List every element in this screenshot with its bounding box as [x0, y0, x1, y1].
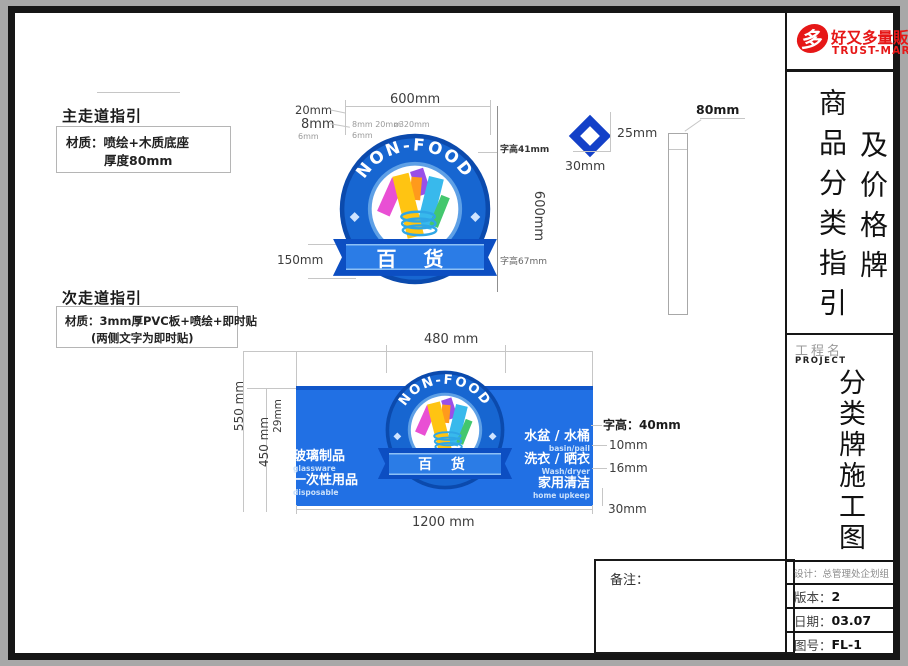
dim-sign2-29: 29mm [273, 393, 285, 439]
leader-line [602, 488, 603, 506]
round-sign-badge-small: NON-FOOD 百 货 [385, 370, 505, 490]
category-zh: 家用清洁 [533, 477, 590, 491]
dim-inner-diameter: ⌀320mm [394, 121, 430, 129]
info-value: 03.07 [832, 613, 872, 628]
spec-sheet: 主走道指引 材质：喷绘+木质底座 厚度80mm 次走道指引 材质：3mm厚PVC… [0, 0, 908, 666]
secondary-material-line1: 材质：3mm厚PVC板+喷绘+即时贴 [65, 313, 229, 330]
info-label: 日期： [794, 611, 832, 630]
category-zh: 一次性用品 [293, 474, 358, 488]
leader-line [592, 468, 607, 469]
remarks-label: 备注： [610, 569, 649, 588]
dim-sign2-450: 450 mm [258, 411, 272, 473]
dim-sign2-550: 550 mm [233, 375, 247, 437]
info-label: 版本： [794, 587, 832, 606]
sidebar-rule [785, 333, 896, 335]
secondary-material-box: 材质：3mm厚PVC板+喷绘+即时贴 (两侧文字为即时贴) [56, 306, 238, 348]
extension-line [345, 100, 346, 135]
category-en: home upkeep [533, 491, 590, 500]
dim-charheight-67: 字高67mm [500, 258, 547, 267]
info-row-design: 设计：总管理处企划组 [787, 560, 896, 583]
leader-line [592, 445, 607, 446]
secondary-aisle-heading: 次走道指引 [62, 287, 142, 308]
remarks-box: 备注： [594, 559, 795, 654]
dim-20mm: 20mm [295, 105, 332, 117]
category-zh: 玻璃制品 [293, 450, 345, 464]
dim-8mm: 8mm [301, 118, 335, 131]
badge-ribbon: 百 货 [378, 448, 512, 479]
info-value: FL-1 [832, 637, 862, 652]
round-sign-badge: NON-FOOD 百 货 [339, 133, 491, 285]
dimension-line-height [497, 106, 498, 292]
bracket-line [386, 345, 387, 373]
bracket-line [505, 345, 506, 373]
category-en: Wash/dryer [524, 467, 590, 476]
primary-material-box: 材质：喷绘+木质底座 厚度80mm [56, 126, 231, 173]
side-view-bar [668, 133, 688, 315]
dim-diamond-width: 30mm [565, 160, 605, 173]
extension-line [490, 100, 491, 135]
dim-charheight-41: 字高41mm [500, 146, 549, 155]
info-label: 图号： [794, 635, 832, 654]
dim-sign1-width: 600mm [390, 93, 440, 106]
primary-material-line1: 材质：喷绘+木质底座 [66, 134, 221, 152]
category-en: glassware [293, 464, 345, 473]
leader-line [591, 425, 602, 426]
dim-sign2-badge-width: 480 mm [424, 333, 478, 346]
secondary-material-line2: (两侧文字为即时贴) [91, 330, 229, 347]
titleblock-info: 设计：总管理处企划组 版本：2 日期：03.07 图号：FL-1 [787, 560, 896, 655]
project-label-en: PROJECT [795, 356, 847, 366]
tick-line [592, 505, 593, 514]
primary-material-line2: 厚度80mm [104, 152, 221, 170]
tick-line [247, 388, 296, 389]
info-label: 设计： [794, 566, 823, 580]
category-zh: 洗衣 / 晒衣 [524, 453, 590, 467]
dim-sign1-height: 600mm [531, 186, 545, 246]
ribbon-text: 百 货 [378, 448, 512, 479]
category-right-1: 水盆 / 水桶 basin/pail [524, 430, 590, 453]
leader-line [700, 118, 745, 119]
category-right-2: 洗衣 / 晒衣 Wash/dryer [524, 453, 590, 476]
dim-charheight-40: 字高：40mm [603, 419, 681, 431]
extension-line [296, 351, 297, 387]
category-left-1: 玻璃制品 glassware [293, 450, 345, 473]
dim-6mm: 6mm [298, 133, 319, 141]
bracket-line [573, 151, 611, 152]
info-value: 总管理处企划组 [823, 566, 890, 580]
construction-line [97, 92, 180, 93]
bracket-line [610, 112, 611, 152]
info-value: 2 [832, 589, 841, 604]
badge-ribbon: 百 货 [333, 239, 497, 276]
dimension-line-bottom [296, 509, 593, 510]
category-en: disposable [293, 488, 358, 497]
category-right-3: 家用清洁 home upkeep [533, 477, 590, 500]
dim-thickness-80: 80mm [696, 104, 739, 117]
dim-sign2-width: 1200 mm [412, 516, 475, 529]
side-view-cap-line [669, 149, 687, 150]
brand-name-en: TRUST-MART [832, 45, 908, 57]
sheet-title-left: 商品分类指引 [811, 88, 851, 328]
info-row-date: 日期：03.07 [787, 607, 896, 631]
dim-diamond-height: 25mm [617, 127, 657, 140]
project-title: 分类牌施工图 [830, 368, 869, 554]
dim-gap-16: 16mm [609, 462, 648, 474]
info-row-drawingno: 图号：FL-1 [787, 631, 896, 655]
extension-line [592, 351, 593, 387]
sidebar-rule [785, 69, 896, 72]
sheet-title-right: 及价格牌 [852, 130, 892, 290]
dim-gap-30: 30mm [608, 503, 647, 515]
primary-aisle-heading: 主走道指引 [62, 105, 142, 126]
category-zh: 水盆 / 水桶 [524, 430, 590, 444]
dim-ribbon-height: 150mm [277, 254, 323, 266]
ribbon-text: 百 货 [333, 239, 497, 276]
category-left-2: 一次性用品 disposable [293, 474, 358, 497]
dim-gap-10: 10mm [609, 439, 648, 451]
tick-line [296, 505, 297, 514]
info-row-version: 版本：2 [787, 583, 896, 607]
